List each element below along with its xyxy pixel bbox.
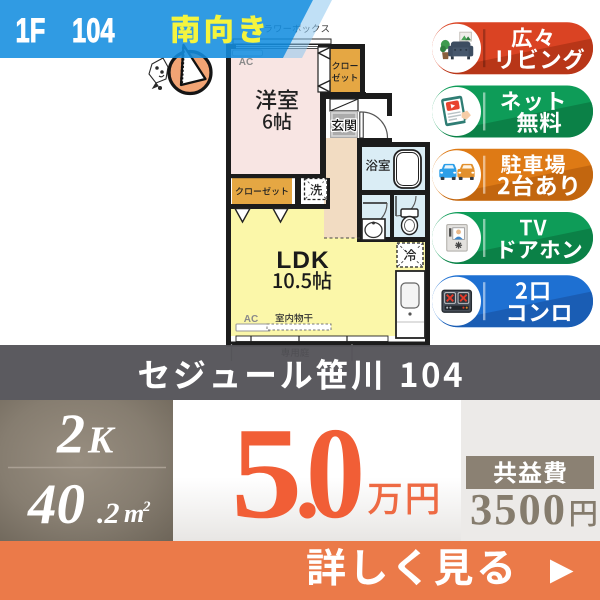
svg-text:1F: 1F (16, 12, 46, 50)
svg-text:2: 2 (56, 404, 85, 466)
svg-text:5: 5 (231, 400, 302, 545)
svg-text:104: 104 (72, 12, 115, 50)
svg-text:AC: AC (244, 314, 258, 325)
svg-text:0: 0 (306, 400, 365, 545)
svg-text:K: K (87, 420, 116, 462)
svg-text:3500: 3500 (470, 484, 567, 534)
svg-text:2: 2 (142, 499, 151, 515)
svg-text:.2: .2 (97, 497, 120, 530)
svg-text:40: 40 (27, 473, 85, 536)
svg-text:LDK: LDK (276, 247, 329, 274)
svg-text:AC: AC (239, 57, 253, 68)
svg-text:m: m (124, 499, 144, 528)
